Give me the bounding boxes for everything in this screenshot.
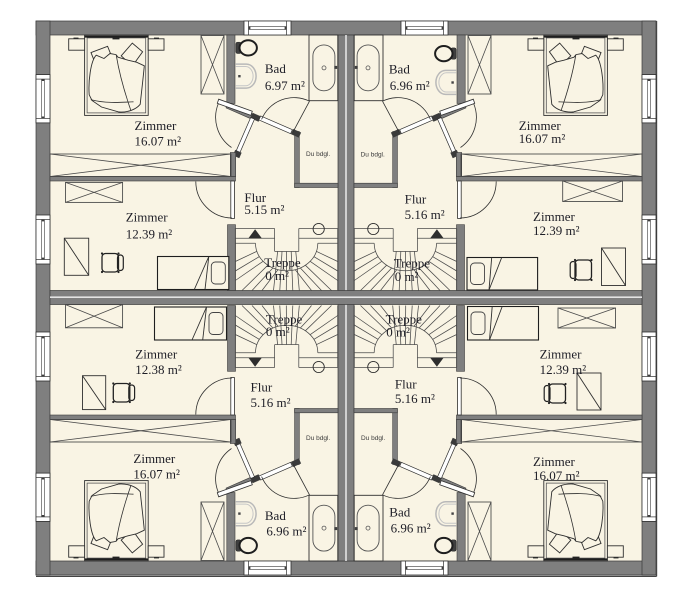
svg-text:5.16 m²: 5.16 m² xyxy=(405,207,445,222)
svg-text:12.39 m²: 12.39 m² xyxy=(533,223,580,238)
svg-text:Bad: Bad xyxy=(389,505,410,520)
svg-text:Zimmer: Zimmer xyxy=(133,451,176,466)
svg-text:12.38 m²: 12.38 m² xyxy=(135,362,182,377)
svg-text:0 m²: 0 m² xyxy=(265,268,289,283)
svg-text:Zimmer: Zimmer xyxy=(126,209,169,224)
svg-text:5.16 m²: 5.16 m² xyxy=(251,395,291,410)
svg-text:Du bdgl.: Du bdgl. xyxy=(361,151,385,158)
svg-text:Zimmer: Zimmer xyxy=(533,454,576,469)
svg-text:Flur: Flur xyxy=(405,191,427,206)
svg-text:5.15 m²: 5.15 m² xyxy=(244,202,284,217)
svg-text:5.16 m²: 5.16 m² xyxy=(395,391,435,406)
svg-text:Zimmer: Zimmer xyxy=(135,118,178,133)
svg-text:Bad: Bad xyxy=(389,61,410,76)
svg-text:0 m²: 0 m² xyxy=(395,269,419,284)
svg-text:16.07 m²: 16.07 m² xyxy=(135,133,182,148)
svg-text:6.97 m²: 6.97 m² xyxy=(265,78,305,93)
svg-text:0 m²: 0 m² xyxy=(266,324,290,339)
svg-text:6.96 m²: 6.96 m² xyxy=(391,521,431,536)
svg-text:Du bdgl.: Du bdgl. xyxy=(306,435,330,442)
svg-text:12.39 m²: 12.39 m² xyxy=(126,226,173,241)
svg-text:Zimmer: Zimmer xyxy=(540,347,583,362)
svg-text:0 m²: 0 m² xyxy=(386,325,410,340)
svg-text:6.96 m²: 6.96 m² xyxy=(266,524,306,539)
svg-text:16.07 m²: 16.07 m² xyxy=(519,131,566,146)
svg-text:16.07 m²: 16.07 m² xyxy=(133,467,180,482)
svg-text:Bad: Bad xyxy=(265,61,286,76)
svg-text:16.07 m²: 16.07 m² xyxy=(533,468,580,483)
svg-text:Du bdgl.: Du bdgl. xyxy=(361,435,385,442)
svg-text:Flur: Flur xyxy=(395,377,417,392)
svg-text:12.39 m²: 12.39 m² xyxy=(540,362,587,377)
svg-text:Du bdgl.: Du bdgl. xyxy=(306,151,330,158)
svg-text:Flur: Flur xyxy=(251,379,273,394)
svg-text:Zimmer: Zimmer xyxy=(135,347,178,362)
svg-text:Zimmer: Zimmer xyxy=(533,209,576,224)
svg-text:Bad: Bad xyxy=(265,508,286,523)
svg-text:6.96 m²: 6.96 m² xyxy=(390,78,430,93)
